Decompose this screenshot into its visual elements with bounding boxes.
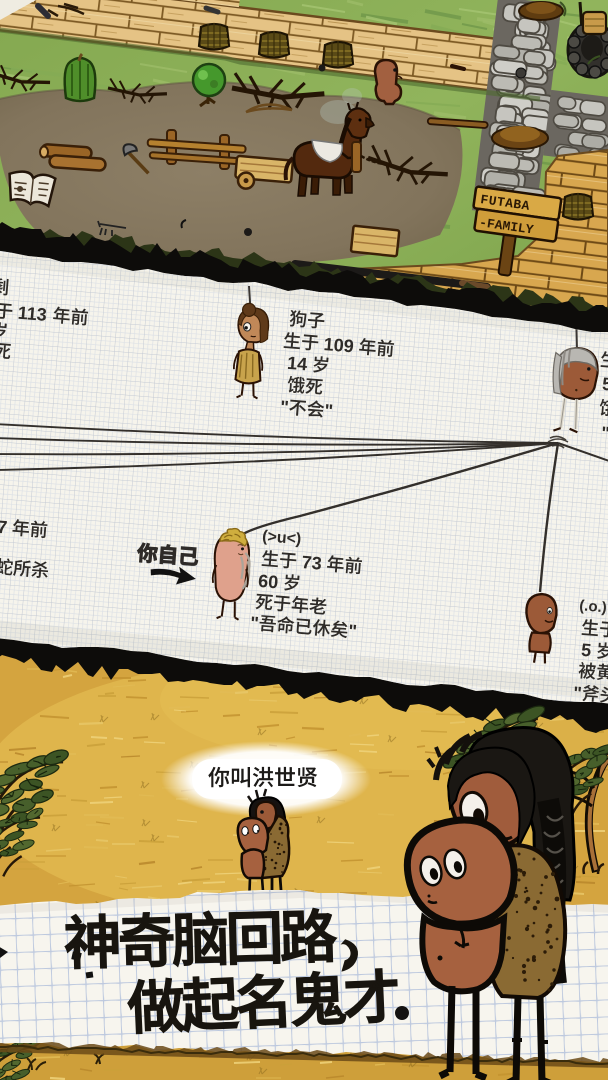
svg-text:": " [279,397,289,418]
svg-text:(.o.): (.o.) [579,597,608,616]
svg-text:(>u<): (>u<) [262,528,302,548]
svg-text:73: 73 [301,552,323,574]
svg-text:113: 113 [17,303,48,325]
svg-text:109: 109 [323,334,355,356]
svg-text:": " [324,400,334,421]
svg-text:60: 60 [257,571,279,593]
svg-text:": " [572,683,582,704]
svg-text:14: 14 [286,353,308,375]
svg-text:5: 5 [580,640,592,661]
svg-text:": " [348,621,358,642]
svg-text:": " [249,613,259,634]
